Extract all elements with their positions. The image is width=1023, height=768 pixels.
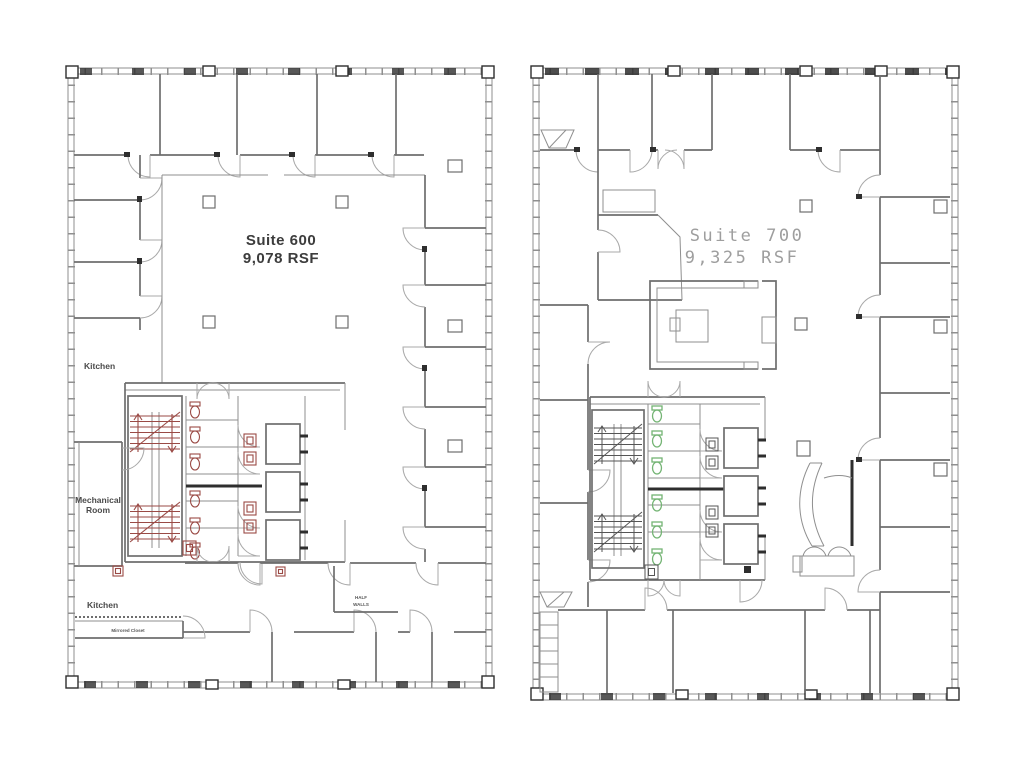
suite-700-restrooms	[645, 404, 724, 580]
suite-600-exterior-walls	[66, 66, 494, 689]
suite-700-exterior-walls	[531, 66, 959, 700]
suite-700-right-offices	[856, 75, 950, 693]
toilet-fixtures	[652, 406, 662, 565]
core-entry-doors	[648, 381, 762, 602]
suite-600-floor-plan: Suite 600 9,078 RSF Kitchen Mechanical R…	[66, 66, 494, 689]
suite-700-top-offices	[540, 74, 880, 172]
kitchen-upper-label: Kitchen	[84, 361, 115, 371]
suite-600-area: 9,078 RSF	[243, 250, 319, 267]
suite-700-title: Suite 700	[690, 226, 805, 246]
half-walls-label-2: WALLS	[353, 602, 369, 607]
janitor-sink	[645, 565, 658, 579]
stair-treads-lower	[594, 512, 642, 552]
suite-600-restrooms	[183, 396, 262, 559]
curved-desk	[800, 463, 852, 546]
suite-700-reception-area	[793, 200, 854, 576]
suite-700-center-feature	[650, 281, 776, 369]
sink-fixtures	[244, 434, 256, 533]
mirrored-closet-label: Mirrored Closet	[111, 628, 145, 633]
suite-600-core	[125, 383, 345, 584]
suite-600-stairwell	[128, 396, 182, 556]
suite-700-topleft-rooms	[541, 130, 682, 300]
suite-700-area: 9,325 RSF	[685, 248, 800, 268]
stair-treads-lower	[130, 502, 180, 542]
suite-600-elevators	[266, 396, 308, 560]
suite-700-core	[590, 381, 766, 602]
toilet-fixtures	[190, 402, 200, 559]
suite-600-title: Suite 600	[246, 232, 316, 249]
suite-600-left-offices	[74, 155, 162, 330]
suite-700-bottom-offices	[540, 588, 880, 693]
kitchen-lower-label: Kitchen	[87, 600, 118, 610]
suite-600-bottom-offices	[75, 563, 486, 682]
suite-600-top-offices	[74, 74, 424, 177]
suite-700-elevators	[724, 428, 766, 564]
floor-plan-sheet: Suite 600 9,078 RSF Kitchen Mechanical R…	[0, 0, 1023, 768]
sofa	[793, 547, 854, 576]
suite-600-right-offices	[403, 160, 486, 549]
half-walls-label-1: HALF	[355, 595, 367, 600]
mechanical-room-label-1: Mechanical	[75, 495, 121, 505]
core-entry-doors	[197, 383, 262, 584]
suite-700-floor-plan: Suite 700 9,325 RSF	[531, 66, 959, 700]
stair-treads-upper	[594, 424, 642, 464]
floor-plans-drawing: Suite 600 9,078 RSF Kitchen Mechanical R…	[0, 0, 1023, 768]
mechanical-room-label-2: Room	[86, 505, 111, 515]
suite-700-labels: Suite 700 9,325 RSF	[685, 226, 805, 268]
suite-600-labels: Suite 600 9,078 RSF Kitchen Mechanical R…	[75, 232, 369, 633]
stair-treads-upper	[130, 412, 180, 452]
floor-drains	[113, 566, 285, 576]
storage-cabinet	[540, 612, 558, 692]
